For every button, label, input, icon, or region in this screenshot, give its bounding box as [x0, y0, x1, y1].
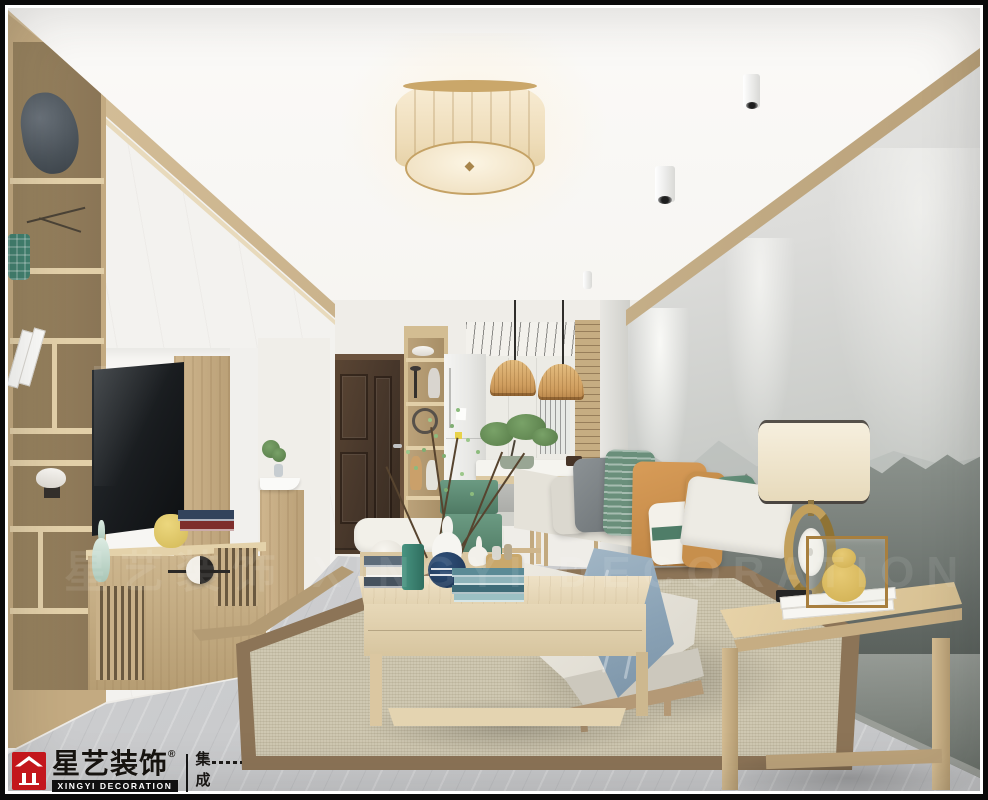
white-bowl: [36, 468, 66, 488]
door-panel: [340, 452, 368, 524]
coffee-table-leg: [636, 652, 648, 716]
candlestick-top: [410, 366, 421, 371]
shelf-board: [10, 178, 104, 184]
teal-plaid-vase: [8, 234, 30, 280]
shelf-board: [406, 358, 446, 362]
logo-dash-line: [212, 761, 242, 764]
brand-name-cn-text: 星艺装饰: [52, 748, 168, 779]
shelf-board: [10, 460, 104, 466]
brand-logo-mark: [12, 752, 46, 790]
door-panel: [340, 374, 368, 440]
console-jar: [274, 464, 283, 477]
table-lamp-shade: [758, 420, 870, 504]
shelf-divider: [38, 526, 43, 614]
framed-render: 星艺装饰 XINGYI DECORATION 星艺装饰® XINGYI DECO…: [0, 0, 988, 800]
refrigerator-seam: [446, 438, 484, 439]
drawer-seam: [368, 630, 642, 631]
book-stack: [178, 510, 234, 521]
refrigerator-handle: [449, 368, 451, 428]
door-panel: [374, 376, 392, 524]
spotlight-lens: [658, 196, 672, 204]
logo-divider: [186, 754, 188, 792]
coffee-table-leg: [370, 654, 382, 726]
decor-ring: [412, 408, 438, 434]
ceiling-lamp-top-rim: [403, 80, 537, 92]
spotlight-cylinder-small: [583, 271, 592, 289]
tv-reflection: [94, 366, 182, 486]
console-counter: [260, 478, 300, 490]
logo-roof-icon: [15, 756, 43, 773]
shelf-board: [10, 526, 104, 532]
shelf-board: [406, 446, 446, 450]
watermark: 星艺装饰 XINGYI DECORATION: [64, 536, 924, 600]
logo-base-icon: [19, 783, 39, 785]
decor-bottle-amber: [410, 456, 422, 490]
brand-name-chinese: 星艺装饰®: [52, 750, 176, 778]
cabinet-slat-door: [96, 586, 144, 680]
decor-candlestick: [414, 370, 417, 398]
shelf-divider: [52, 338, 57, 434]
logo-pillar-icon: [22, 773, 26, 783]
coffee-table-shadow: [358, 698, 668, 754]
logo-unit-char-bottom: 成: [194, 771, 212, 790]
spotlight-lens: [746, 102, 758, 109]
interior-rendering-photo: 星艺装饰 XINGYI DECORATION: [5, 5, 983, 794]
fridge-note-white: [456, 408, 467, 421]
logo-pillar-icon: [32, 773, 36, 783]
decor-figurine: [428, 368, 440, 398]
shelf-board: [406, 402, 446, 406]
book-stack: [180, 521, 234, 531]
logo-unit-char-top: 集: [194, 750, 212, 769]
console-plant: [272, 448, 286, 462]
branch-leaves: [422, 448, 426, 452]
pendant-cord: [514, 300, 516, 364]
pendant-cord: [562, 300, 564, 368]
coffee-table-lower-shelf: [380, 708, 634, 726]
side-table-leg: [932, 638, 950, 790]
decor-bowl: [412, 346, 434, 356]
brand-name-english: XINGYI DECORATION: [52, 780, 178, 792]
bonsai-canopy: [532, 428, 558, 446]
door-handle: [393, 444, 402, 448]
registered-mark: ®: [168, 749, 176, 760]
shelf-board: [10, 428, 104, 434]
side-table-leg: [722, 648, 738, 790]
